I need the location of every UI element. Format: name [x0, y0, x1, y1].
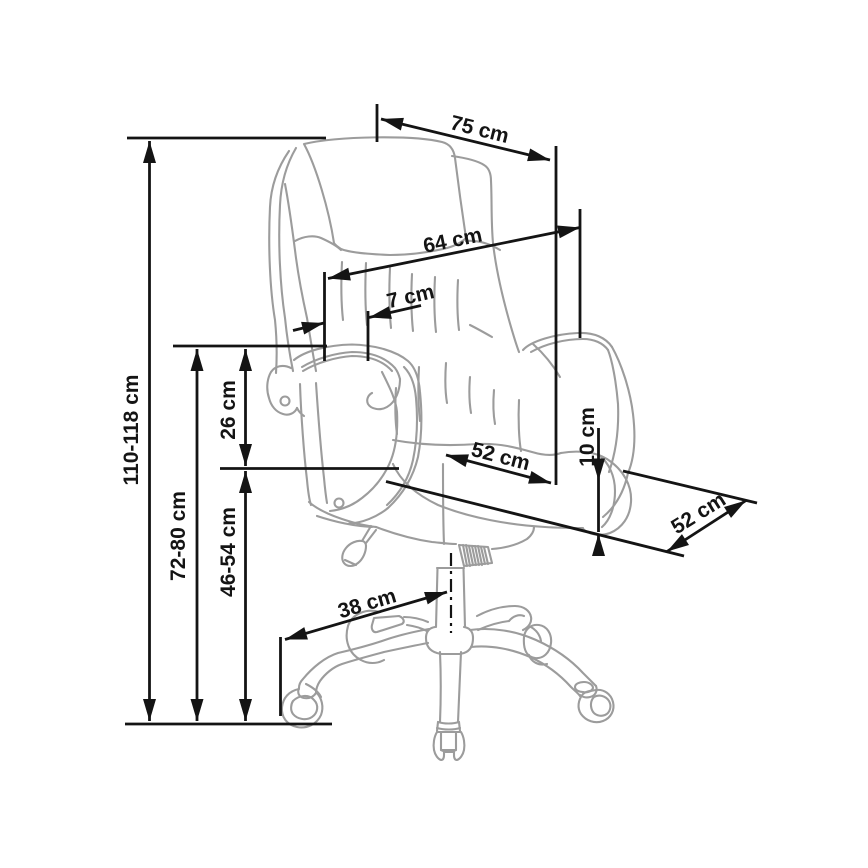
svg-text:46-54 cm: 46-54 cm	[217, 507, 240, 597]
svg-text:10 cm: 10 cm	[576, 407, 599, 467]
svg-text:26 cm: 26 cm	[217, 380, 240, 440]
svg-text:72-80 cm: 72-80 cm	[167, 491, 190, 581]
svg-text:7 cm: 7 cm	[385, 280, 437, 313]
svg-text:110-118 cm: 110-118 cm	[120, 375, 143, 486]
